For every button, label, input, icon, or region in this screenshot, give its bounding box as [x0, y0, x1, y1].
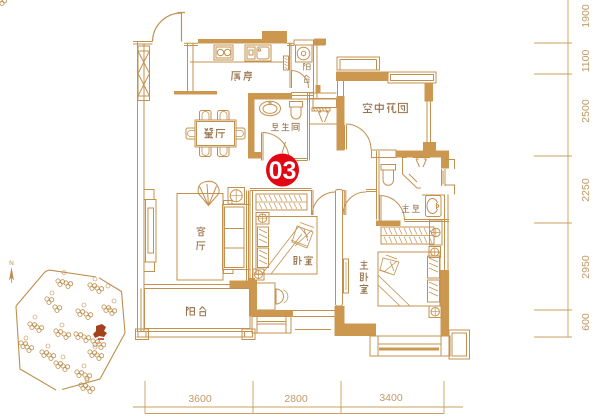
svg-text:03: 03	[269, 157, 297, 185]
svg-text:1900: 1900	[580, 4, 592, 28]
svg-text:2250: 2250	[580, 178, 592, 202]
svg-text:2500: 2500	[580, 99, 592, 123]
svg-text:2800: 2800	[284, 393, 308, 405]
svg-text:1100: 1100	[580, 50, 592, 73]
svg-text:N: N	[9, 260, 14, 267]
svg-text:600: 600	[580, 313, 592, 331]
svg-text:3400: 3400	[379, 392, 403, 404]
svg-text:2950: 2950	[580, 255, 592, 279]
svg-text:3600: 3600	[188, 393, 212, 405]
